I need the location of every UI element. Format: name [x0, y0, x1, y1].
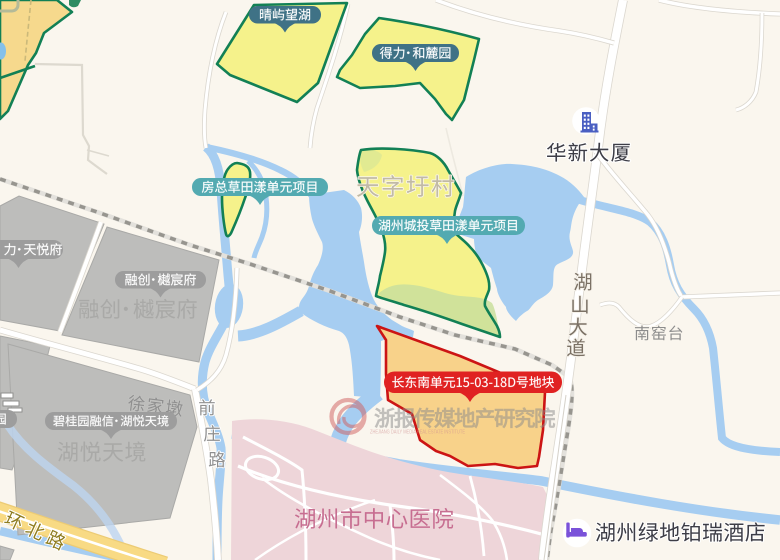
svg-text:ZHEJIANG DAILY MEDIA REAL ESTA: ZHEJIANG DAILY MEDIA REAL ESTATE INSTITU…	[370, 430, 465, 436]
